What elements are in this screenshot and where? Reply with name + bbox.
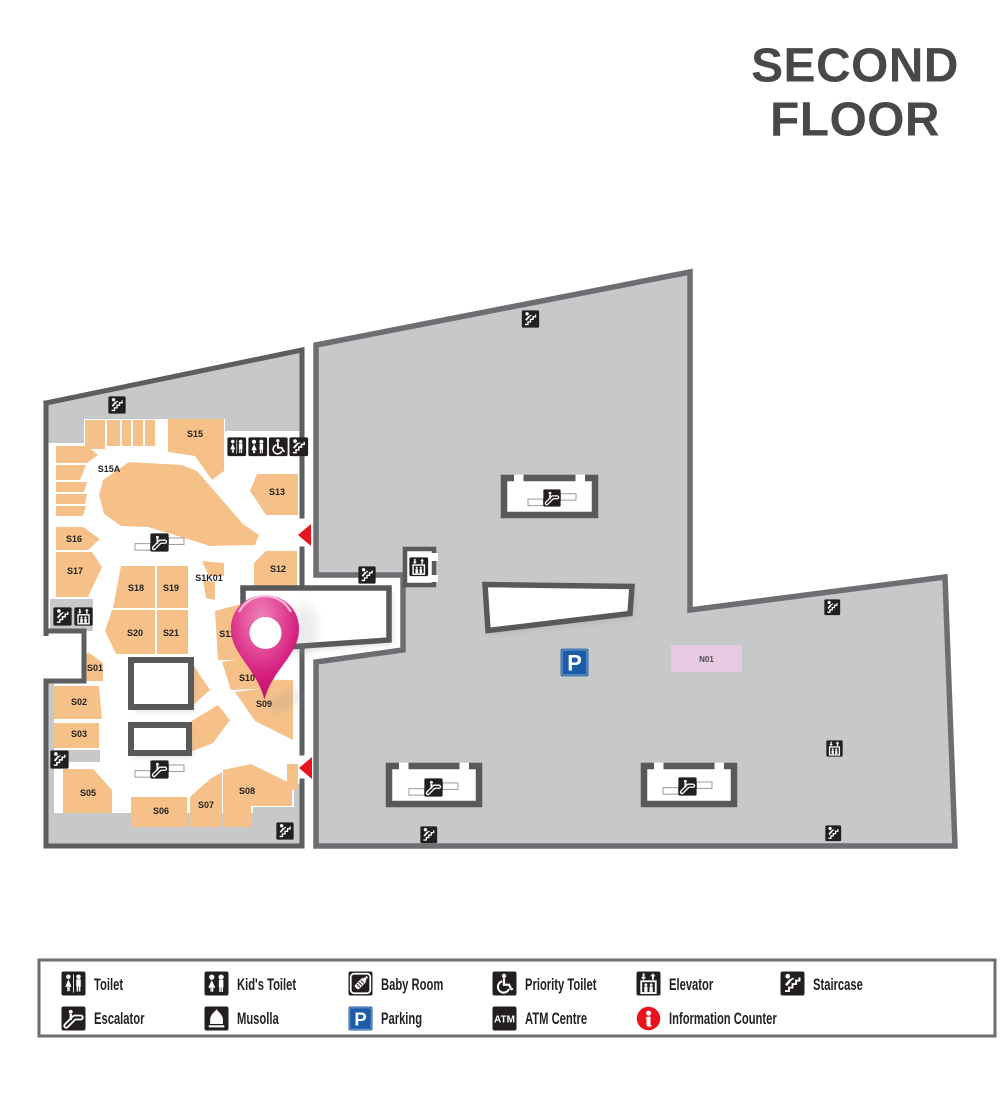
svg-text:Information Counter: Information Counter — [669, 1010, 777, 1029]
svg-text:Escalator: Escalator — [94, 1010, 145, 1029]
svg-text:S03: S03 — [71, 729, 87, 739]
svg-text:S07: S07 — [198, 800, 214, 810]
svg-text:Baby Room: Baby Room — [381, 976, 443, 995]
svg-text:Priority Toilet: Priority Toilet — [525, 976, 597, 995]
svg-text:S13: S13 — [269, 487, 285, 497]
svg-text:ATM Centre: ATM Centre — [525, 1010, 587, 1029]
svg-text:S15: S15 — [187, 429, 203, 439]
svg-text:S10: S10 — [239, 673, 255, 683]
svg-text:S20: S20 — [127, 628, 143, 638]
svg-text:S05: S05 — [80, 788, 96, 798]
svg-text:S12: S12 — [270, 564, 286, 574]
svg-text:S16: S16 — [66, 534, 82, 544]
svg-text:Parking: Parking — [381, 1010, 422, 1029]
svg-text:SECOND: SECOND — [751, 40, 959, 93]
svg-text:S02: S02 — [71, 697, 87, 707]
svg-text:Elevator: Elevator — [669, 976, 714, 995]
svg-text:S21: S21 — [163, 628, 179, 638]
svg-text:S1K01: S1K01 — [195, 573, 223, 583]
svg-text:Musolla: Musolla — [237, 1010, 280, 1029]
svg-text:S08: S08 — [239, 786, 255, 796]
svg-text:S18: S18 — [128, 583, 144, 593]
svg-text:S06: S06 — [153, 806, 169, 816]
svg-text:Staircase: Staircase — [813, 976, 863, 995]
svg-text:N01: N01 — [699, 655, 714, 664]
svg-text:S19: S19 — [163, 583, 179, 593]
svg-text:Kid's Toilet: Kid's Toilet — [237, 976, 296, 995]
svg-text:S01: S01 — [87, 663, 103, 673]
svg-text:S17: S17 — [67, 566, 83, 576]
svg-text:Toilet: Toilet — [94, 976, 123, 995]
svg-text:FLOOR: FLOOR — [770, 94, 940, 147]
svg-text:S15A: S15A — [98, 464, 121, 474]
